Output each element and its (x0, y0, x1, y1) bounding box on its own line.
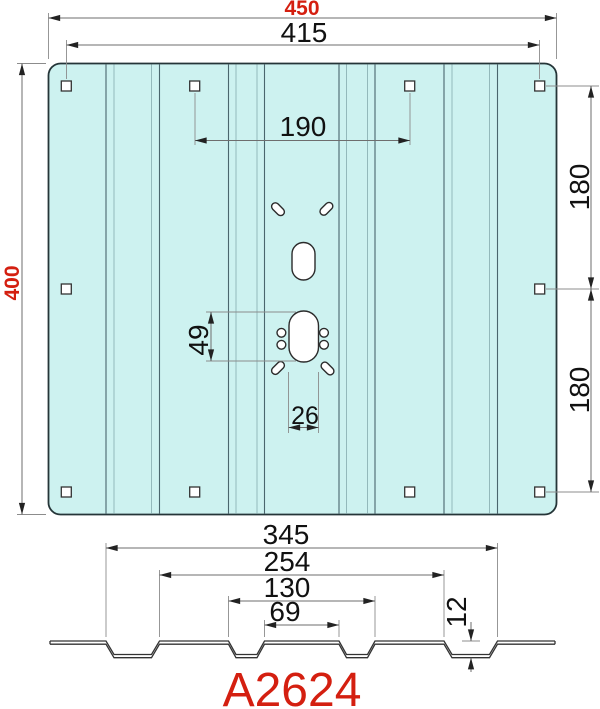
dim-label-180-lower: 180 (564, 367, 595, 414)
part-number: A2624 (223, 664, 362, 709)
dim-label-49: 49 (183, 324, 214, 355)
dim-label-26: 26 (291, 402, 319, 430)
dim-label-415: 415 (281, 17, 328, 48)
top-view: 450 415 190 400 (1, 0, 599, 515)
round-hole (320, 328, 329, 337)
square-hole (190, 487, 200, 497)
round-hole (277, 340, 286, 349)
square-hole (535, 81, 545, 91)
dim-label-190: 190 (280, 111, 327, 142)
sheet-profile (50, 641, 555, 658)
square-hole (61, 487, 71, 497)
profile-view: 345 254 130 69 12 (50, 519, 555, 672)
technical-drawing: 450 415 190 400 (0, 0, 600, 709)
dim-center-outer: 130 (229, 572, 376, 637)
stadium-hole-large (289, 311, 319, 362)
square-hole (405, 487, 415, 497)
square-hole (61, 284, 71, 294)
dim-rib-depth: 12 (441, 596, 480, 672)
dim-label-12: 12 (441, 596, 472, 627)
dim-label-69: 69 (269, 596, 300, 627)
dim-label-400: 400 (1, 265, 24, 300)
square-hole (535, 487, 545, 497)
square-hole (405, 81, 415, 91)
round-hole (320, 340, 329, 349)
round-hole (277, 328, 286, 337)
dim-height-total: 400 (1, 64, 46, 515)
dim-label-180-upper: 180 (564, 164, 595, 211)
stadium-hole-small (292, 243, 315, 281)
square-hole (190, 81, 200, 91)
drawing-canvas: 450 415 190 400 (0, 0, 600, 709)
square-hole (535, 284, 545, 294)
square-hole (61, 81, 71, 91)
